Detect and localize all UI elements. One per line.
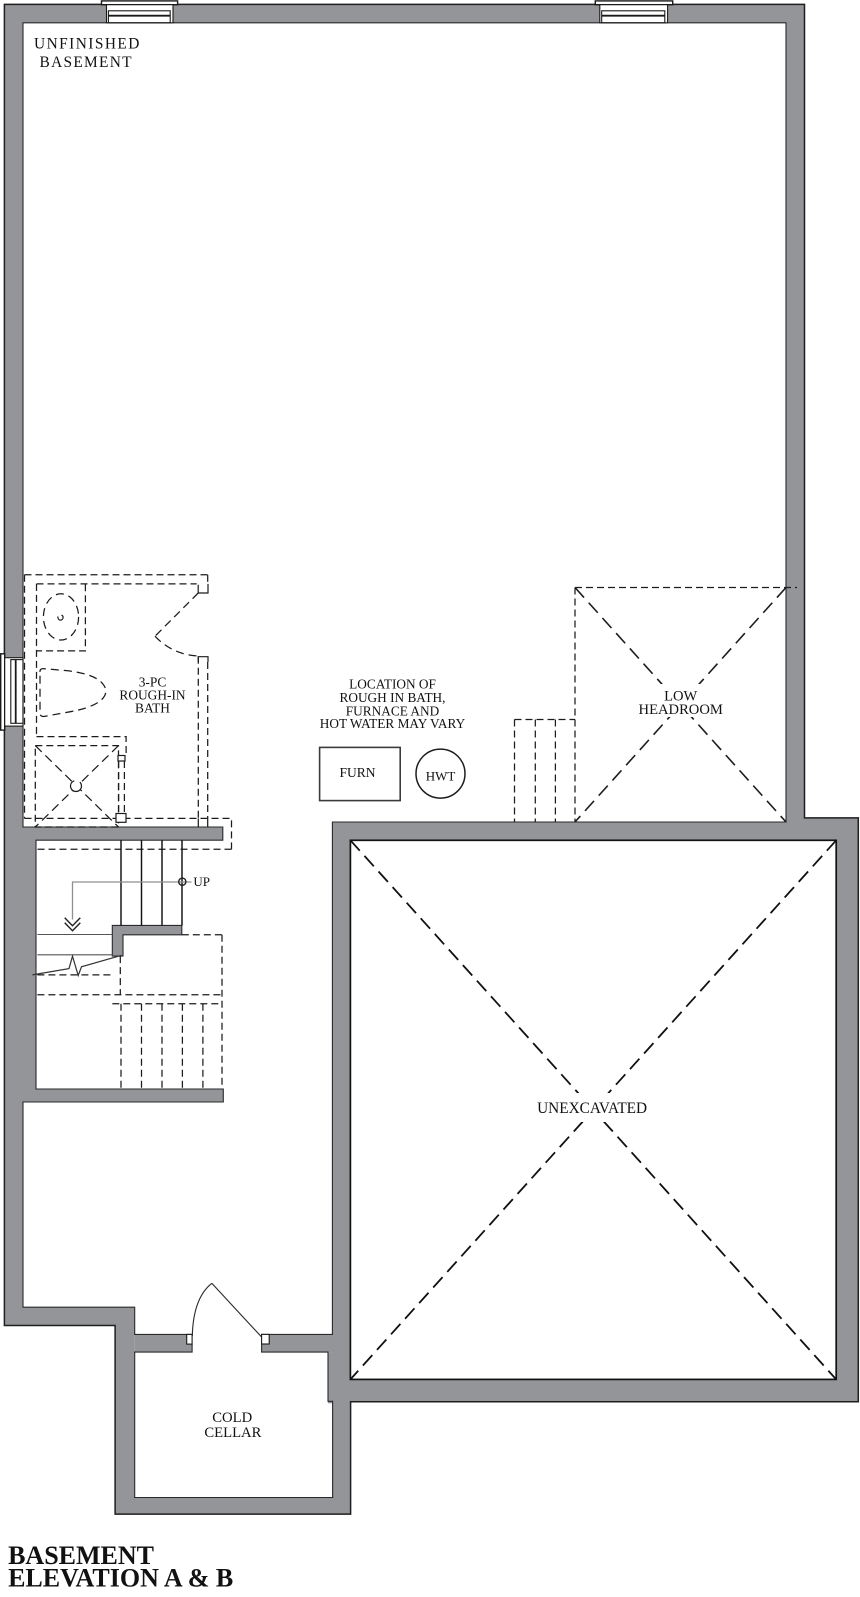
- svg-text:HWT: HWT: [426, 769, 456, 784]
- svg-text:UP: UP: [193, 874, 210, 889]
- svg-text:CELLAR: CELLAR: [204, 1425, 261, 1441]
- svg-text:BASEMENT: BASEMENT: [40, 54, 133, 71]
- svg-text:UNEXCAVATED: UNEXCAVATED: [537, 1100, 647, 1117]
- svg-text:HEADROOM: HEADROOM: [639, 702, 723, 718]
- svg-text:COLD: COLD: [212, 1410, 252, 1426]
- svg-text:UNFINISHED: UNFINISHED: [34, 35, 141, 52]
- svg-text:HOT WATER MAY VARY: HOT WATER MAY VARY: [320, 716, 466, 731]
- svg-text:ELEVATION A & B: ELEVATION A & B: [8, 1563, 233, 1592]
- svg-text:BATH: BATH: [135, 701, 170, 716]
- svg-text:FURN: FURN: [339, 765, 375, 780]
